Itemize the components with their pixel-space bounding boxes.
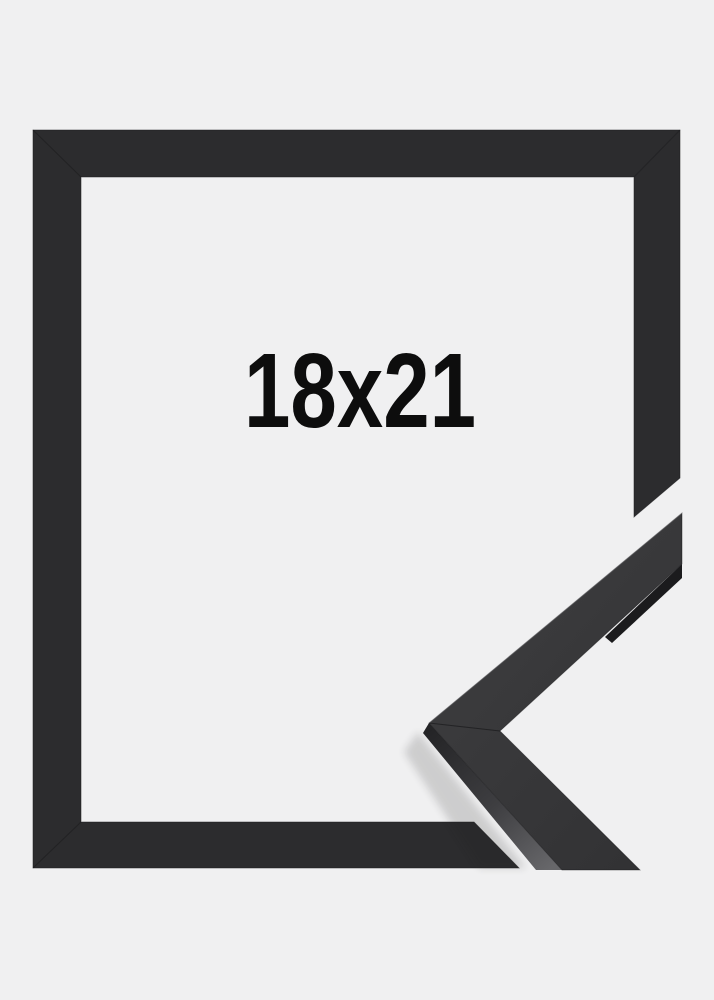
product-photo: 18x21 xyxy=(0,0,714,1000)
frame-product-illustration: 18x21 xyxy=(0,0,714,1000)
size-label: 18x21 xyxy=(244,332,476,450)
